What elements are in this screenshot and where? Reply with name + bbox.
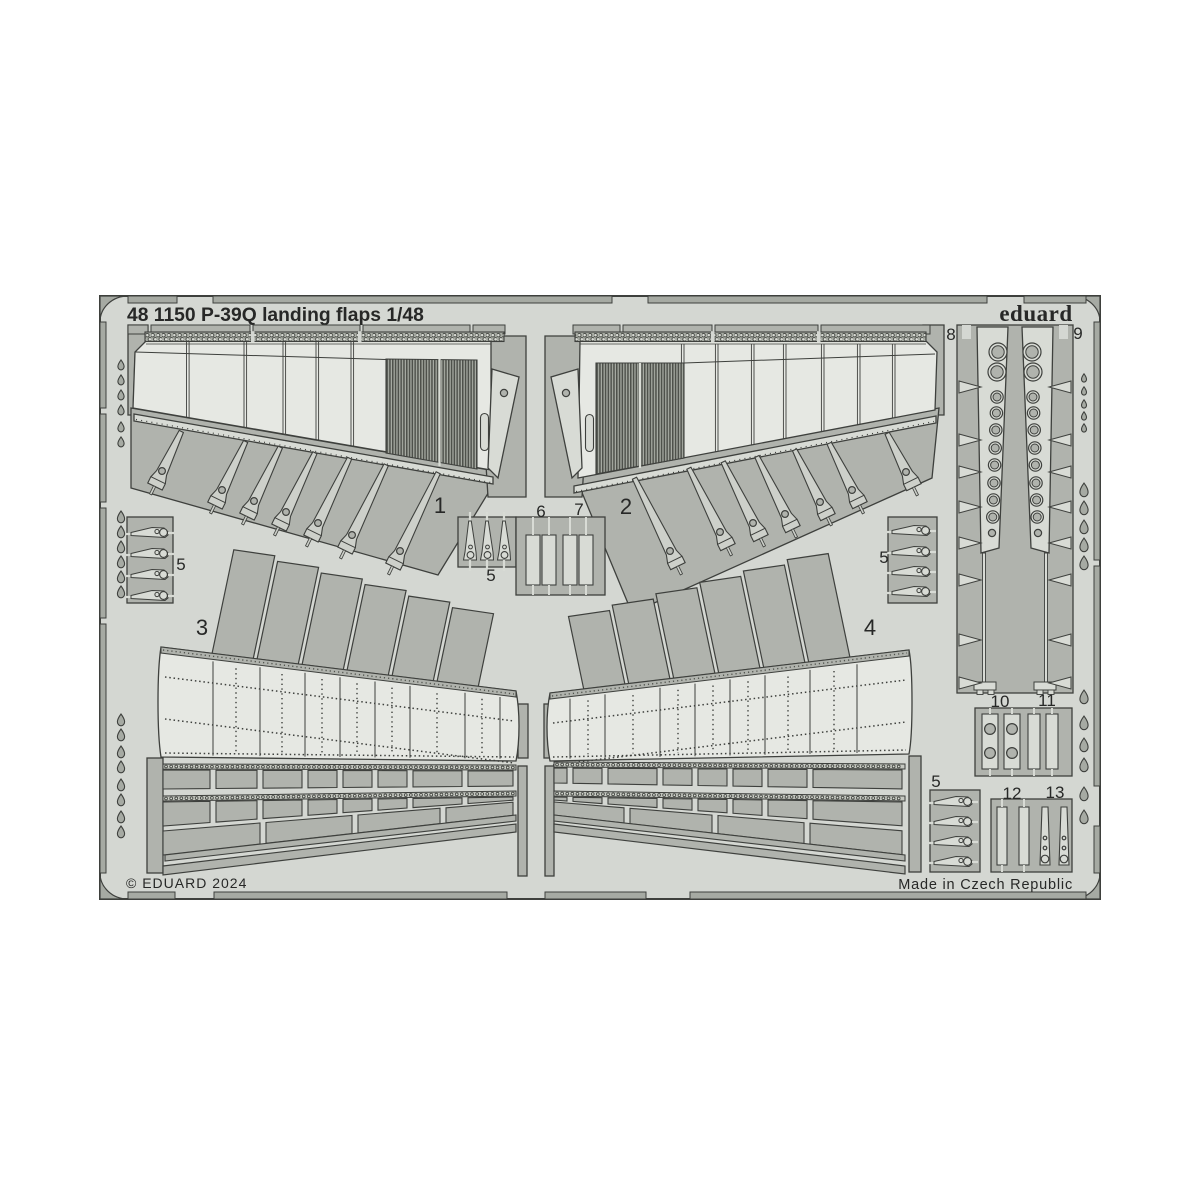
svg-text:© EDUARD 2024: © EDUARD 2024 [126, 875, 247, 891]
svg-text:5: 5 [486, 566, 495, 585]
svg-text:11: 11 [1038, 691, 1056, 710]
svg-text:9: 9 [1073, 324, 1082, 343]
svg-text:eduard: eduard [999, 301, 1072, 326]
svg-text:13: 13 [1046, 783, 1065, 802]
svg-text:48 1150 P-39Q landing flaps 1/: 48 1150 P-39Q landing flaps 1/48 [127, 305, 424, 326]
svg-text:7: 7 [574, 500, 583, 519]
svg-text:4: 4 [864, 615, 876, 640]
svg-text:5: 5 [176, 555, 185, 574]
svg-text:5: 5 [879, 548, 888, 567]
svg-text:8: 8 [946, 325, 955, 344]
svg-text:10: 10 [991, 692, 1010, 711]
svg-text:12: 12 [1003, 784, 1022, 803]
svg-text:6: 6 [536, 502, 545, 521]
svg-text:3: 3 [196, 615, 208, 640]
svg-text:1: 1 [434, 493, 446, 518]
svg-text:2: 2 [620, 494, 632, 519]
svg-text:5: 5 [931, 772, 940, 791]
svg-text:Made in Czech Republic: Made in Czech Republic [898, 877, 1073, 893]
